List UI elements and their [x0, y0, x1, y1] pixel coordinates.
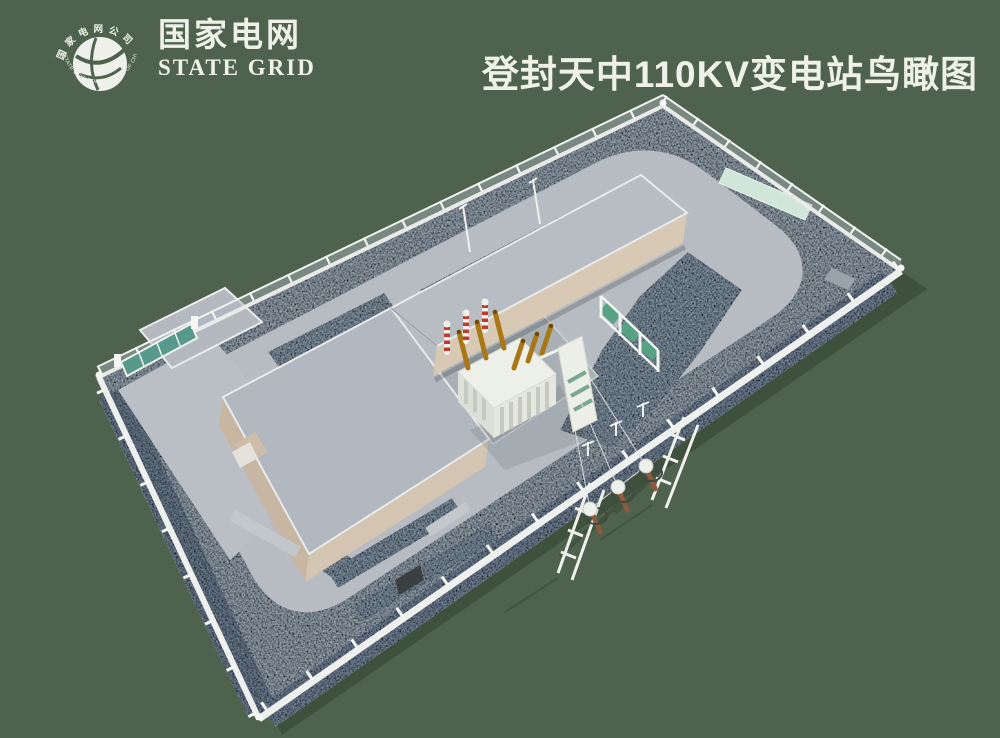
substation-aerial-rendering: 国家电网公司 STATE GRID CORPORATION OF CHINA	[0, 0, 1000, 738]
state-grid-emblem: 国家电网公司 STATE GRID CORPORATION OF CHINA	[0, 0, 139, 91]
slide-canvas: 国家电网公司 STATE GRID CORPORATION OF CHINA 国…	[0, 0, 1000, 738]
